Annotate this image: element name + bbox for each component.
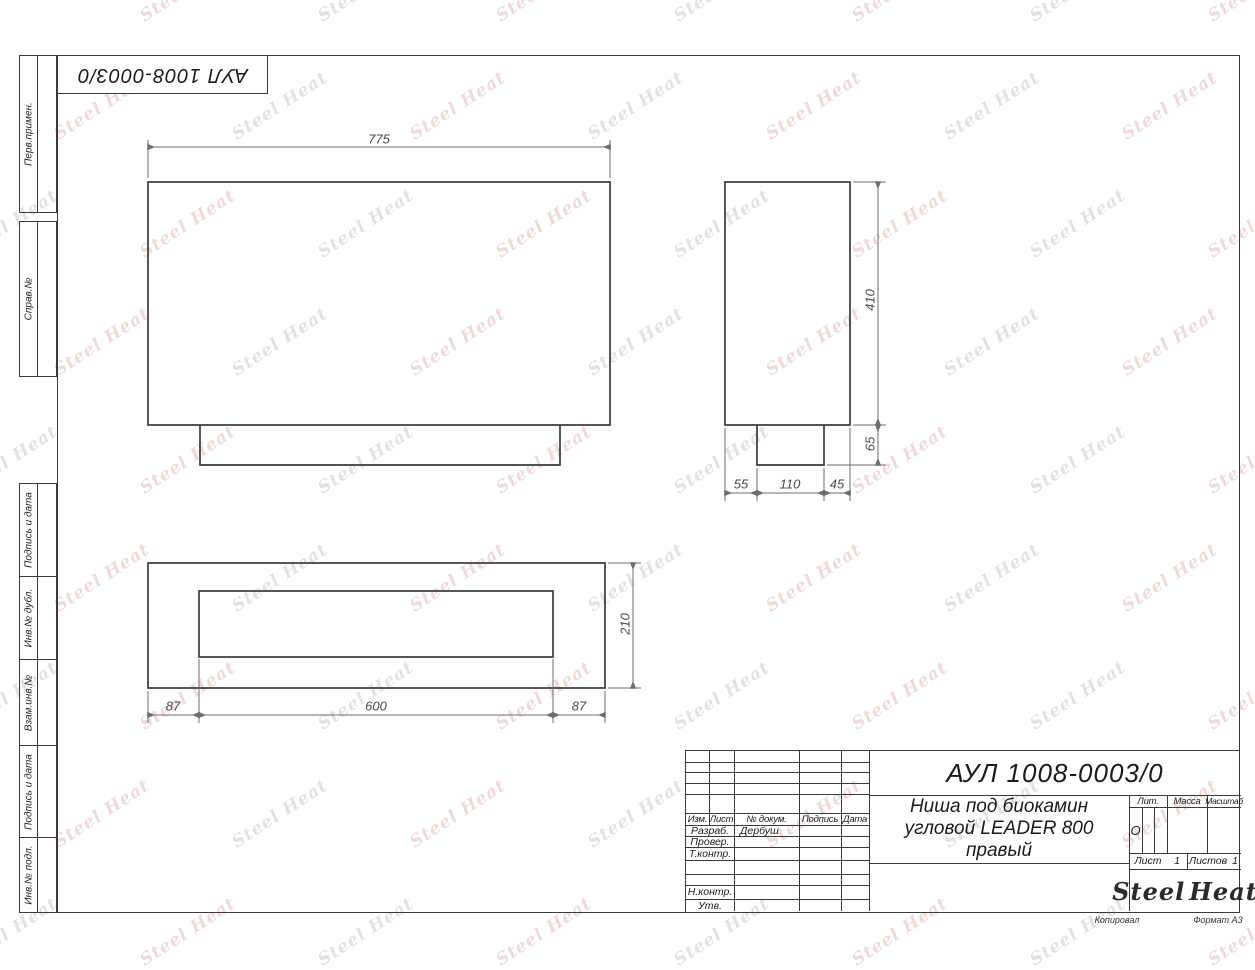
listov-label: Листов <box>1187 853 1229 869</box>
row-nkontr: Н.контр. <box>686 885 734 899</box>
title-block-designation: АУЛ 1008-0003/0 <box>869 751 1241 795</box>
grid-line <box>37 56 38 212</box>
lit-label: Лит. <box>1129 795 1167 807</box>
col-header-date: Дата <box>841 813 869 825</box>
grid-line <box>37 222 38 376</box>
logo-heat-text: Heat <box>1189 877 1255 906</box>
grid-line <box>1142 807 1143 853</box>
dim-side-height: 410 <box>863 289 878 311</box>
grid-line <box>841 751 842 911</box>
margin-label: Взам.инв.№ <box>24 674 35 730</box>
lit-value: О <box>1129 807 1142 853</box>
margin-label: Подпись и дата <box>24 754 35 830</box>
margin-box-inv-podl: Инв.№ подл. <box>19 837 57 913</box>
dim-side-base-height: 65 <box>863 437 878 451</box>
col-header-izm: Изм. <box>686 813 709 825</box>
margin-label: Инв.№ подл. <box>24 845 35 904</box>
dim-plan-seg-mid: 600 <box>365 699 387 714</box>
col-header-list: Лист <box>709 813 734 825</box>
part-name-line3: правый <box>966 840 1032 862</box>
list-value: 1 <box>1167 853 1187 869</box>
margin-box-podpis-data-2: Подпись и дата <box>19 745 57 838</box>
grid-line <box>1154 807 1155 853</box>
masshtab-label: Масштаб <box>1207 795 1241 807</box>
dim-plan-depth: 210 <box>618 613 633 635</box>
row-razrab: Разраб. <box>686 825 734 836</box>
grid-line <box>37 484 38 576</box>
razrab-name: Дербуш <box>734 825 799 836</box>
dim-side-seg-mid: 110 <box>780 477 801 492</box>
title-block: Изм. Лист № докум. Подпись Дата Разраб. … <box>685 750 1240 913</box>
steel-heat-logo: Steel Heat <box>1129 869 1241 914</box>
grid-line <box>37 660 38 745</box>
margin-label: Перв.примен. <box>24 102 35 166</box>
format-note: Формат А3 <box>1193 915 1242 925</box>
dim-plan-seg-left: 87 <box>166 699 180 714</box>
grid-line <box>869 863 1129 864</box>
margin-box-sprav-no: Справ.№ <box>19 221 57 377</box>
row-tkontr: Т.контр. <box>686 847 734 860</box>
row-utv: Утв. <box>686 899 734 913</box>
designation-top-box: АУЛ 1008-0003/0 <box>57 55 268 94</box>
list-label: Лист <box>1129 853 1167 869</box>
grid-line <box>37 577 38 659</box>
logo-steel-text: Steel <box>1112 877 1185 906</box>
margin-box-perv-primen: Перв.примен. <box>19 55 57 213</box>
grid-line <box>37 746 38 837</box>
dim-side-seg-left: 55 <box>734 477 748 492</box>
listov-value: 1 <box>1229 853 1241 869</box>
margin-label: Инв.№ дубл. <box>24 589 35 648</box>
part-name-line1: Ниша под биокамин <box>910 796 1088 818</box>
grid-line <box>1129 807 1241 808</box>
margin-label: Подпись и дата <box>24 492 35 568</box>
drawing-sheet: Steel HeatSteel HeatSteel HeatSteel Heat… <box>0 0 1255 970</box>
margin-box-podpis-data-1: Подпись и дата <box>19 483 57 577</box>
dim-side-seg-right: 45 <box>830 477 844 492</box>
margin-box-inv-dubl: Инв.№ дубл. <box>19 576 57 660</box>
col-header-doc: № докум. <box>734 813 799 825</box>
grid-line <box>37 838 38 912</box>
massa-label: Масса <box>1167 795 1207 807</box>
dim-plan-seg-right: 87 <box>572 699 586 714</box>
dim-front-width: 775 <box>368 132 390 147</box>
margin-label: Справ.№ <box>24 278 35 321</box>
part-name-line2: угловой LEADER 800 <box>905 818 1094 840</box>
part-name: Ниша под биокамин угловой LEADER 800 пра… <box>869 795 1129 863</box>
designation-top-text: АУЛ 1008-0003/0 <box>58 56 267 93</box>
col-header-sign: Подпись <box>799 813 841 825</box>
row-prover: Провер. <box>686 836 734 847</box>
kopiroval-note: Копировал <box>1095 915 1140 925</box>
grid-line <box>799 751 800 911</box>
margin-box-vzam-inv: Взам.инв.№ <box>19 659 57 746</box>
